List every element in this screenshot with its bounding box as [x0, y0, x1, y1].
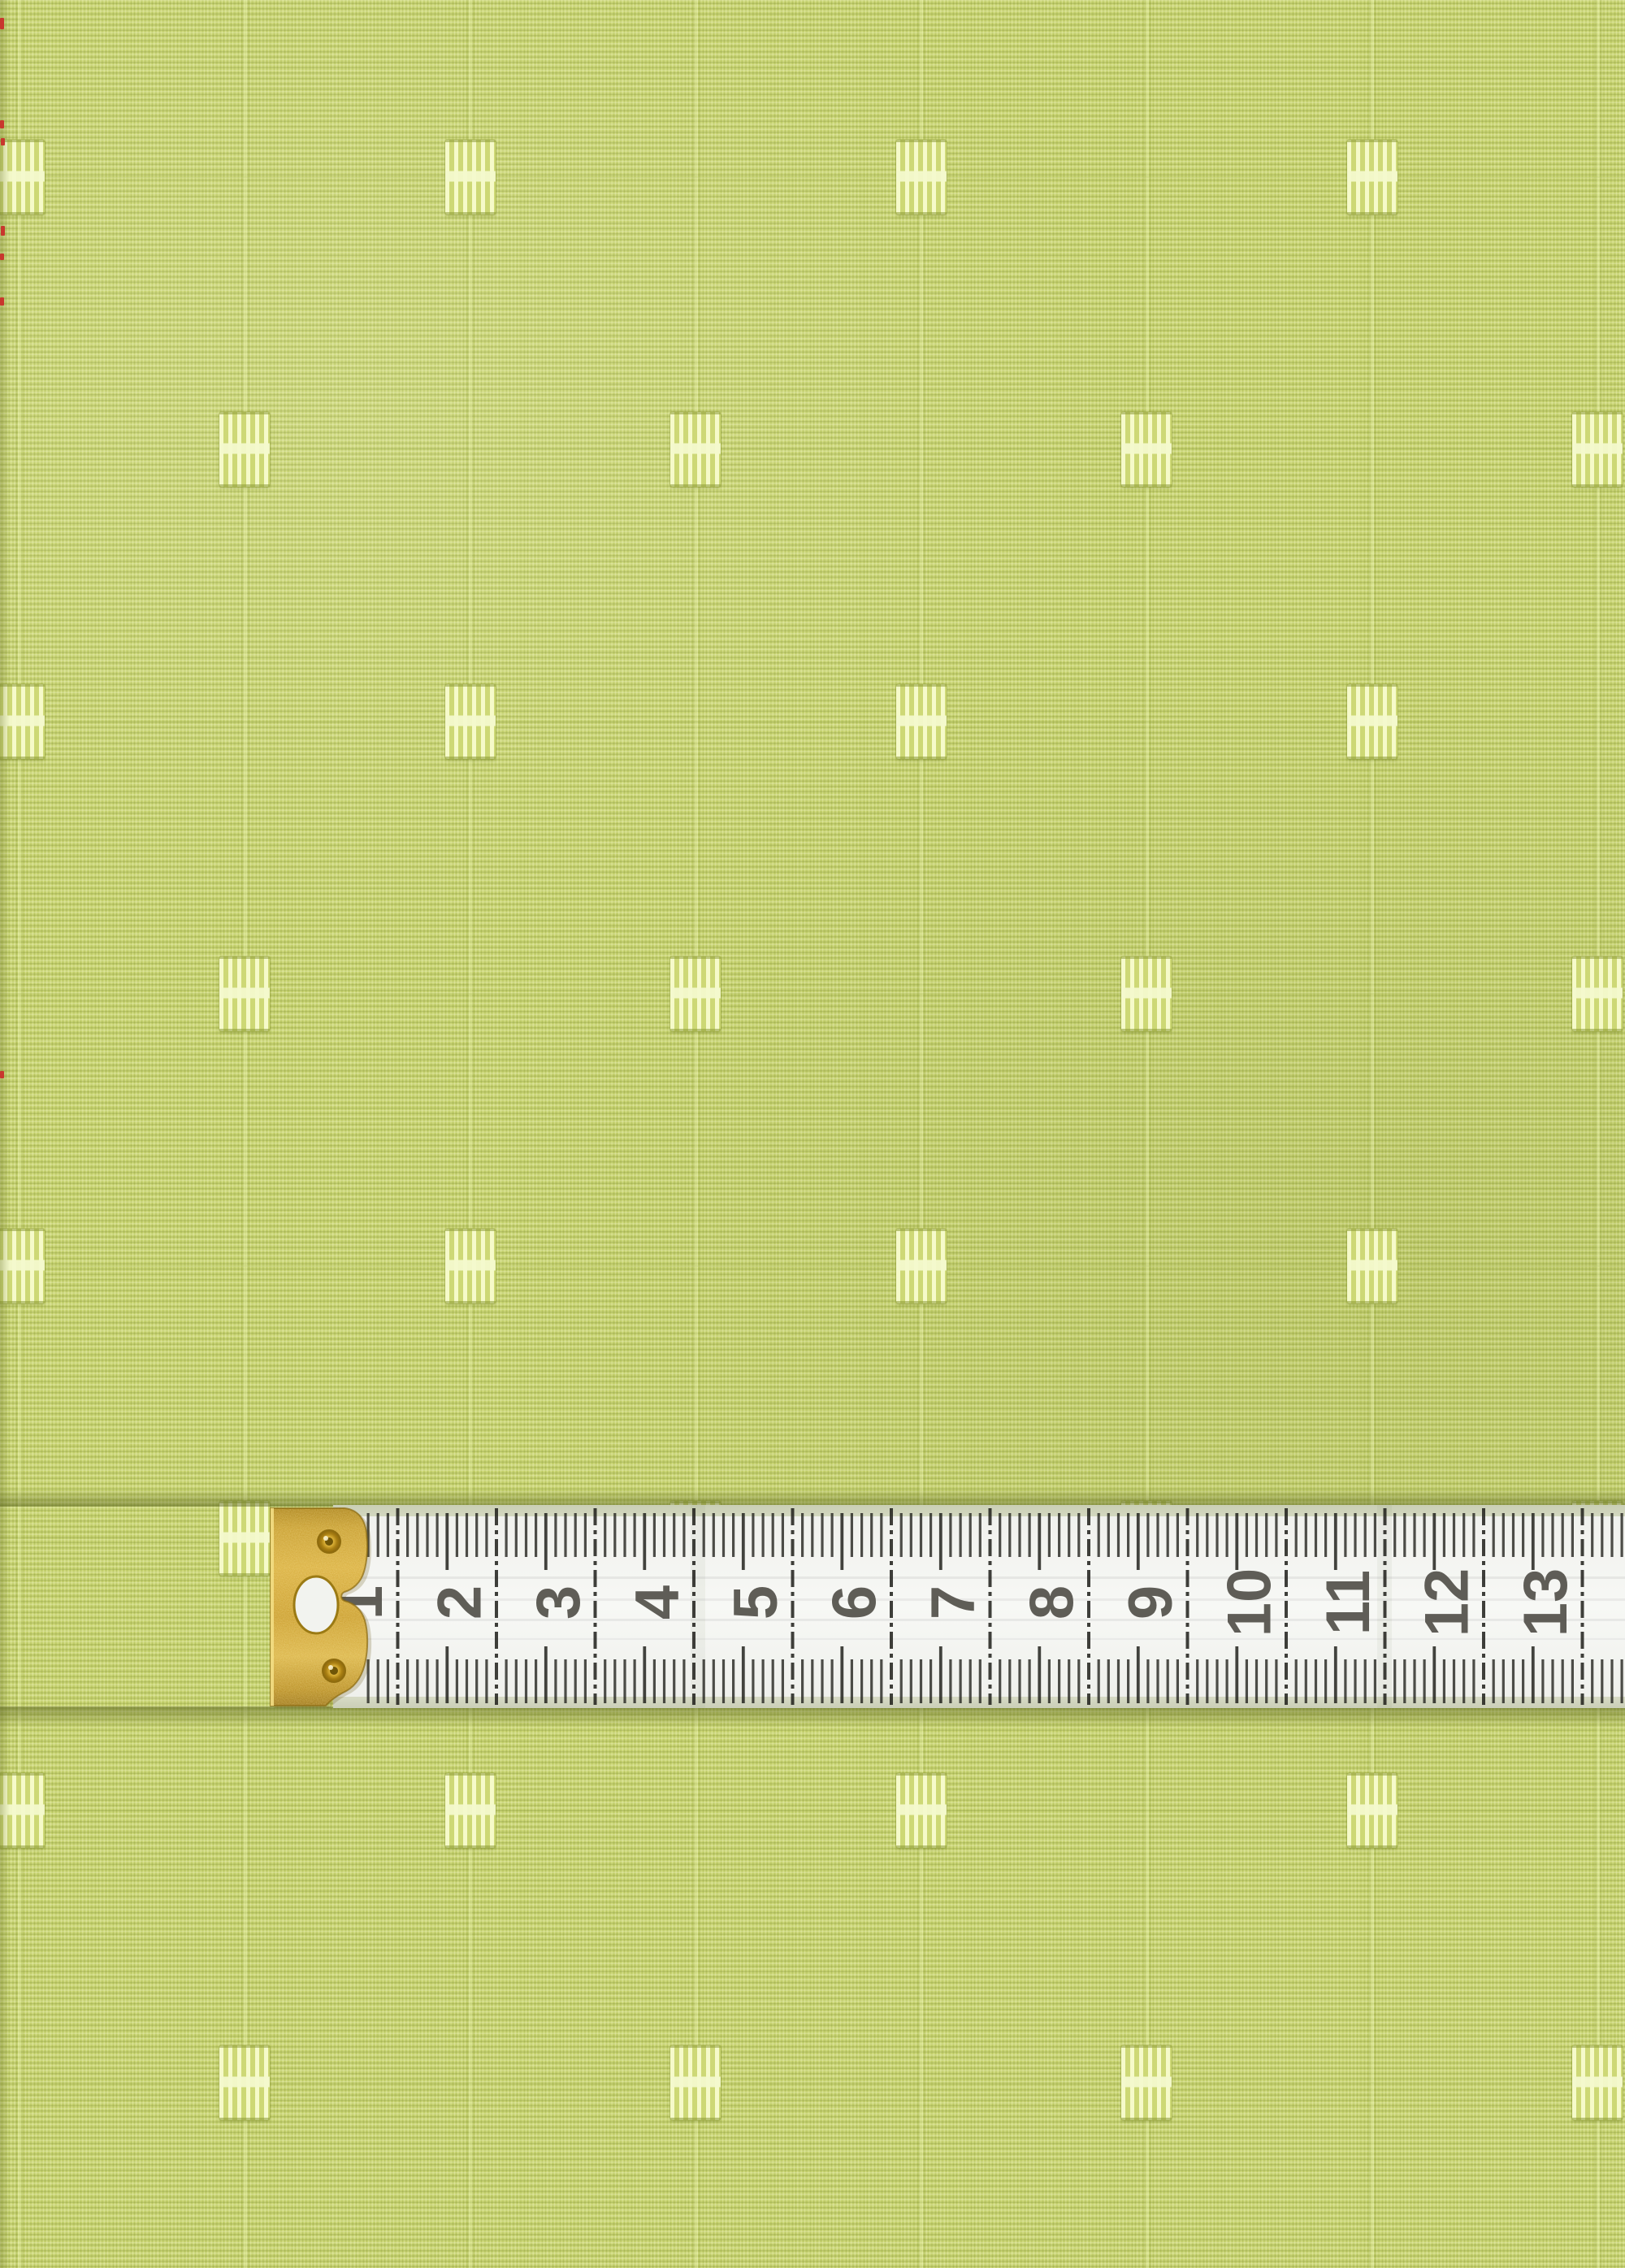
tape-number-12: 12: [1413, 1568, 1482, 1637]
tape-number-9: 9: [1116, 1585, 1185, 1620]
tape-number-4: 4: [623, 1585, 692, 1620]
tip-slot-hole: [294, 1576, 338, 1633]
tip-rivet-top: [318, 1530, 340, 1553]
tape-metal-tip: [271, 1508, 371, 1708]
measuring-tape: 12345678910111213: [0, 0, 1625, 2268]
tip-rivet-bottom: [323, 1659, 345, 1682]
tape-number-2: 2: [426, 1585, 495, 1620]
tape-number-3: 3: [524, 1585, 593, 1620]
tape-number-10: 10: [1215, 1568, 1285, 1637]
fabric-photo-scene: 12345678910111213: [0, 0, 1625, 2268]
tape-number-8: 8: [1018, 1585, 1087, 1620]
tape-number-11: 11: [1314, 1570, 1383, 1635]
tape-number-6: 6: [821, 1585, 890, 1620]
tip-edge-highlight: [271, 1508, 274, 1706]
tape-number-13: 13: [1511, 1568, 1580, 1637]
tape-number-5: 5: [721, 1585, 791, 1620]
tape-number-7: 7: [919, 1585, 988, 1620]
